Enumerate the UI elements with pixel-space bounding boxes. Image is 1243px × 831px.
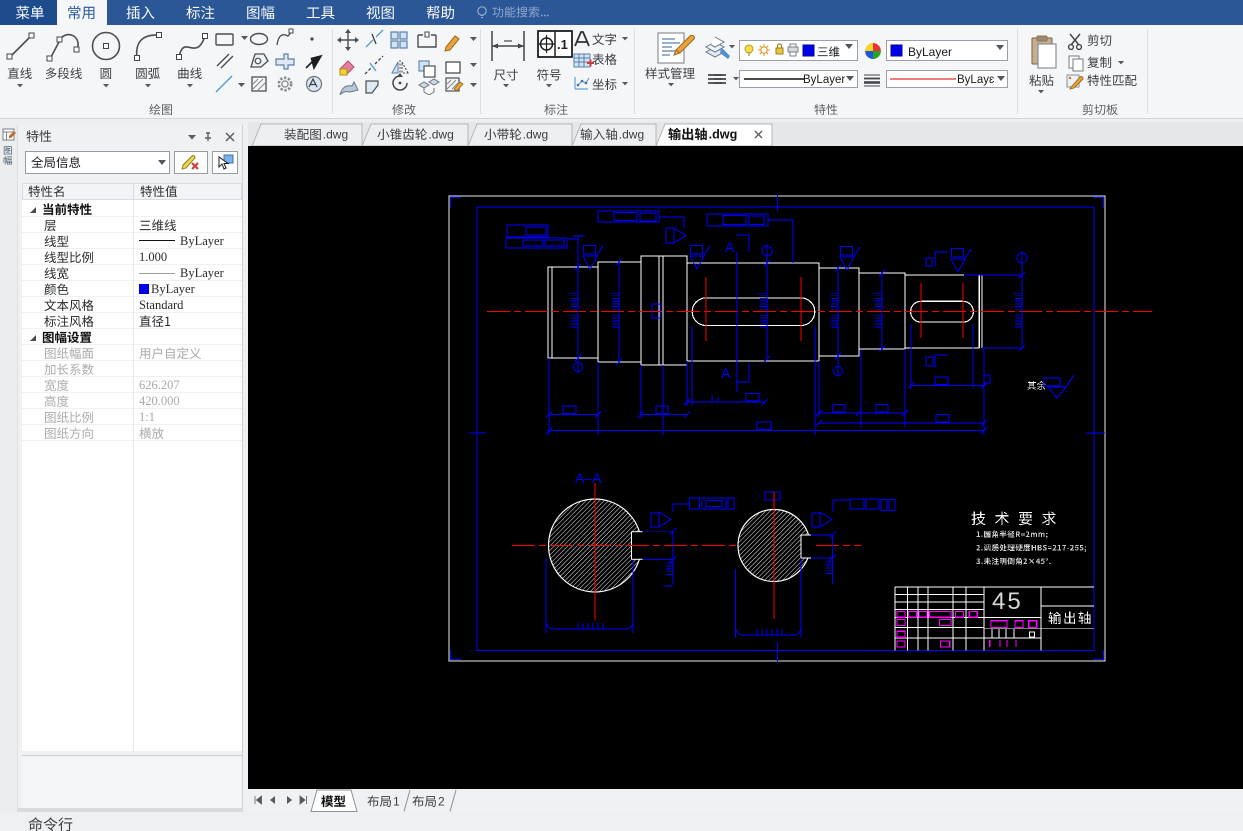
svg-text:.1: .1 (557, 37, 568, 52)
svg-text:A: A (721, 365, 731, 381)
svg-text:.dwg: .dwg (428, 128, 453, 142)
svg-text:.dwg: .dwg (619, 128, 644, 142)
svg-text:1: 1 (393, 795, 400, 809)
svg-text:.dwg: .dwg (323, 128, 348, 142)
svg-text:A: A (725, 239, 735, 255)
svg-text:A–A: A–A (575, 470, 602, 486)
svg-text:.dwg: .dwg (709, 128, 738, 142)
svg-text:45: 45 (992, 588, 1023, 615)
svg-text:.dwg: .dwg (523, 128, 548, 142)
svg-text:2: 2 (438, 795, 445, 809)
